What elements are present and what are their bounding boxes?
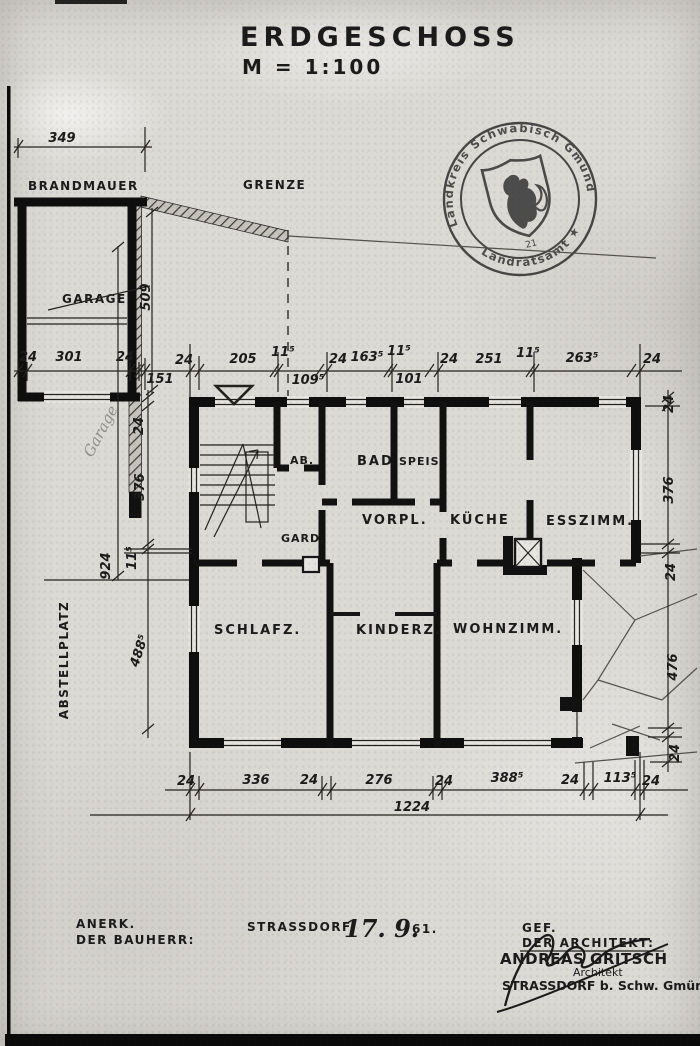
room-label-wohnzimm: WOHNZIMM. [453,622,563,637]
dim-boundary: 509 [139,283,154,310]
dim-label: 24 [132,417,147,435]
dim-label: 24 [329,352,347,367]
room-label-schlafz: SCHLAFZ. [214,623,301,638]
dim-label: 24 [642,774,660,789]
dim-label: 24 [440,352,458,367]
place-label: STRASSDORF, [247,920,356,934]
grenze-label: GRENZE [243,178,306,192]
dimension-chain-left: 24 376 11⁵ 924 488⁵ [99,242,192,738]
scan-left-edge [7,86,11,1046]
dim-label: 113⁵ [604,771,637,786]
dim-label: 11⁵ [125,546,140,570]
scan-bottom-edge [5,1034,700,1046]
room-label-ab: AB. [290,454,314,467]
dim-label: 24 [643,352,661,367]
scan-top-mark [55,0,127,4]
room-label-bad: BAD [357,454,394,469]
dim-label: 24 [435,774,453,789]
dim-label: 24 [668,744,683,762]
dim-label: 205 [229,352,256,367]
witness-lines-right [640,406,682,762]
dim-label: 376 [662,476,677,503]
room-label-vorpl: VORPL. [362,513,428,528]
dim-label: 376 [133,473,148,500]
dim-label: 24 [116,350,134,365]
dim-label: 251 [475,352,502,367]
room-label-kinderz: KINDERZ. [356,623,442,638]
drawing-scale: M = 1:100 [242,55,383,79]
house-plan: AB. BAD SPEIS VORPL. GARD. KÜCHE ESSZIMM… [188,386,642,749]
stamp-number: 21 [525,238,539,250]
dim-label: 24 [19,350,37,365]
handwritten-date: 17. 9. [344,914,419,943]
grenze-line [288,236,656,258]
dim-label: 263⁵ [566,351,599,366]
dim-label: 388⁵ [491,771,524,786]
dim-label: 24 [662,395,677,413]
garage-door-opening [44,391,110,403]
terrace-pillar [626,736,639,756]
dim-label: 24 [561,773,579,788]
scanned-floor-plan: ERDGESCHOSS M = 1:100 Landkreis Schwäbis… [0,0,700,1046]
grenze-boundary-wall [141,196,288,242]
flue-box [303,557,319,572]
year-label: 61. [412,922,438,936]
dim-label: 336 [242,773,269,788]
approval-label-line2: DER BAUHERR: [76,933,195,947]
dim-label: 276 [365,773,392,788]
garage-pencil-note: Garage [80,402,122,460]
dim-label: 24 [664,563,679,581]
dimension-chain-bottom: 24 336 24 276 24 388⁵ 24 113⁵ 24 1224 [90,752,688,821]
dim-label: 924 [99,552,114,579]
room-label-gard: GARD. [281,532,325,545]
dim-label: 476 [666,653,681,681]
chimney [303,536,547,575]
staircase [200,444,275,537]
dim-label: 109⁵ [292,373,325,388]
dim-label: 24 [300,773,318,788]
garage-plan: 349 BRANDMAUER GRENZE GARAGE 24 301 24 1… [14,127,656,518]
dim-label: 151 [146,372,173,387]
dim-label: 101 [395,372,422,387]
stamp-lion-icon [500,171,543,232]
architect-place-stamp: STRASSDORF b. Schw. Gmünd [502,978,700,993]
dim-label: 301 [55,350,82,365]
wall-pier [560,697,581,711]
dim-label: 163⁵ [351,350,384,365]
approval-label-line1: ANERK. [76,917,136,931]
room-label-speis: SPEIS [399,455,440,468]
room-label-esszimm: ESSZIMM. [546,514,634,529]
dim-label: 11⁵ [387,344,411,359]
dim-label: 24 [175,353,193,368]
footer-block: ANERK. DER BAUHERR: STRASSDORF, 17. 9. 6… [76,914,700,1012]
dim-label: 11⁵ [271,345,295,360]
dimension-chain-right: 24 376 24 476 24 [640,390,683,772]
floor-plan-drawing: ERDGESCHOSS M = 1:100 Landkreis Schwäbis… [0,0,700,1046]
dim-label: 11⁵ [516,346,540,361]
dim-total: 1224 [394,800,430,815]
architect-label-line1: GEF. [522,921,557,935]
garage-interior-lines [27,318,127,324]
drawing-title: ERDGESCHOSS [240,22,520,53]
dim-garage-width: 349 [48,131,75,146]
brandmauer-label: BRANDMAUER [28,179,139,193]
abstellplatz-label: ABSTELLPLATZ [57,601,71,719]
official-stamp: Landkreis Schwäbisch Gmünd Landratsamt ★… [425,104,615,291]
title-block: ERDGESCHOSS M = 1:100 [240,22,520,79]
room-label-kueche: KÜCHE [450,512,510,528]
dim-label: 24 [177,774,195,789]
